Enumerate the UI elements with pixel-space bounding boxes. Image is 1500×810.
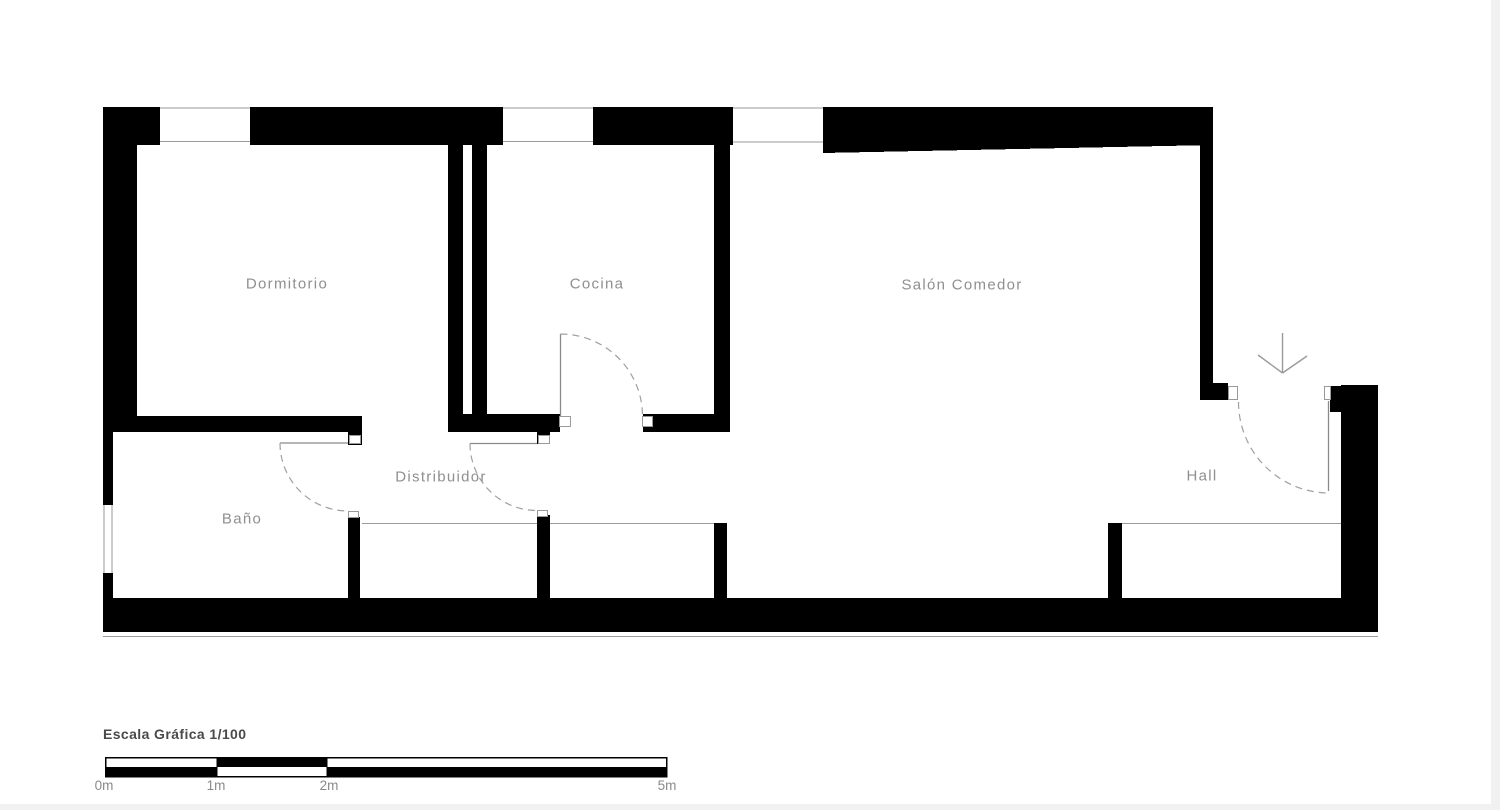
wall-cocina-bottom-left [448, 414, 560, 432]
double-wall-strip-1 [448, 140, 463, 416]
closet-b-stub [714, 523, 727, 598]
bano-closet-stub [348, 517, 360, 598]
wall-bottom [103, 598, 1378, 632]
window-left [104, 505, 112, 573]
closet-c-stub [1108, 523, 1122, 600]
scale-tick-1m: 1m [207, 778, 226, 793]
entrance-arrow-icon [1258, 333, 1307, 373]
door-frames-group [349, 387, 1331, 518]
wall-top-segment-2 [250, 107, 503, 145]
window-top-2 [503, 108, 593, 142]
scale-tick-0m: 0m [95, 778, 114, 793]
scale-bar-title: Escala Gráfica 1/100 [103, 726, 246, 742]
wall-left-upper [103, 107, 137, 432]
room-label-cocina: Cocina [570, 276, 625, 293]
walls-group [103, 107, 1378, 632]
floor-plan-canvas: Dormitorio Cocina Salón Comedor Distribu… [0, 0, 1500, 810]
wall-left-lower [103, 416, 113, 505]
page-edge-right [1491, 0, 1500, 810]
wall-right [1341, 385, 1378, 632]
wall-salon-right [1200, 107, 1213, 383]
wall-top-salon-slanted [823, 107, 1213, 153]
window-top-1 [160, 108, 250, 142]
door-cocina [561, 334, 643, 416]
scale-tick-5m: 5m [658, 778, 677, 793]
windows-group [103, 108, 1378, 637]
room-label-distribuidor: Distribuidor [395, 469, 486, 486]
wall-cocina-salon [714, 140, 730, 432]
distribuidor-closet-stub [537, 515, 550, 598]
room-label-bano: Baño [222, 511, 262, 528]
room-label-salon-comedor: Salón Comedor [901, 277, 1022, 294]
door-entrada [1238, 401, 1329, 493]
door-bano [280, 443, 348, 511]
wall-top-segment-3 [593, 107, 733, 145]
room-label-hall: Hall [1186, 468, 1217, 485]
room-label-dormitorio: Dormitorio [246, 276, 328, 293]
floorplan-drawing [0, 0, 1500, 810]
scale-tick-2m: 2m [320, 778, 339, 793]
entrance-hinge-jamb [1330, 386, 1342, 412]
page-edge-bottom [0, 804, 1500, 810]
double-wall-strip-2 [472, 140, 487, 416]
scale-bar [106, 758, 668, 778]
window-top-3 [733, 108, 823, 142]
wall-salon-right-foot [1200, 383, 1228, 400]
wall-dormitorio-bano [113, 416, 362, 432]
